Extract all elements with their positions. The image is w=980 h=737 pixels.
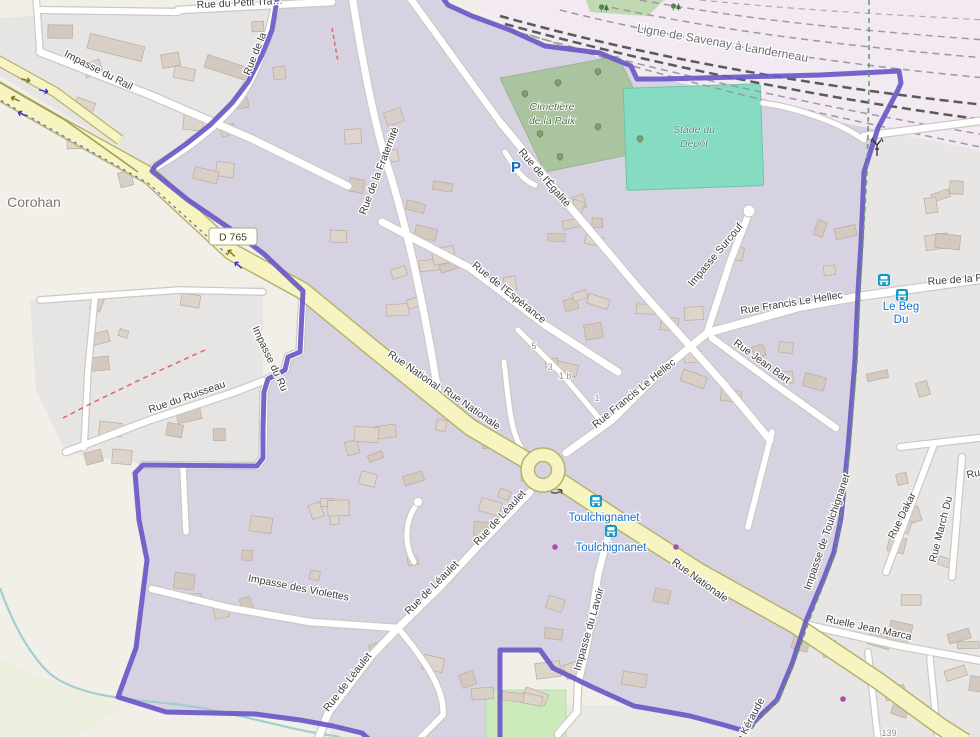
- building: [823, 265, 836, 276]
- building: [48, 25, 73, 39]
- building: [344, 129, 362, 145]
- building: [354, 426, 379, 443]
- bus-icon: [590, 495, 602, 507]
- building: [896, 472, 909, 485]
- bus-stop-label-toulchignanet-1: Toulchignanet: [569, 512, 641, 524]
- cul-de-sac: [414, 498, 423, 507]
- building: [213, 428, 225, 440]
- cemetery-label-line1: Cimetière: [530, 101, 575, 113]
- building: [778, 341, 793, 353]
- building: [252, 21, 264, 32]
- building: [180, 293, 201, 308]
- house-number: 139: [881, 728, 896, 737]
- house-number: 1: [594, 393, 599, 403]
- building: [386, 304, 409, 317]
- building: [435, 419, 447, 432]
- road-ref-text: D 765: [219, 232, 247, 244]
- house-number: 3: [547, 362, 552, 372]
- building: [330, 230, 347, 243]
- building: [91, 356, 109, 371]
- cul-de-sac: [743, 205, 755, 217]
- building: [592, 218, 603, 228]
- bus-stop-label-toulchignanet-2: Toulchignanet: [576, 542, 648, 554]
- building: [173, 572, 195, 590]
- building: [166, 422, 184, 437]
- building: [548, 234, 565, 242]
- house-number: 1 b: [559, 371, 572, 381]
- building: [949, 181, 963, 195]
- parking-icon: P: [511, 159, 521, 176]
- map-canvas[interactable]: D 765 P Corohan Ligne de Savenay à Lande…: [0, 0, 980, 737]
- bus-icon: [896, 289, 908, 301]
- building: [471, 687, 494, 700]
- building: [684, 306, 703, 320]
- bus-icon: [605, 525, 617, 537]
- building: [309, 570, 321, 581]
- bus-icon: [878, 274, 890, 286]
- poi-dot: [552, 544, 558, 550]
- stadium-label-line1: Stade du: [673, 124, 715, 136]
- residential-area-west: [30, 286, 263, 465]
- building: [327, 500, 349, 516]
- poi-dot: [673, 544, 679, 550]
- map-viewport: D 765 P Corohan Ligne de Savenay à Lande…: [0, 0, 980, 737]
- stadium-label-line2: Dépôt: [680, 138, 709, 150]
- road-ref-badge: D 765: [209, 228, 257, 245]
- building: [242, 550, 253, 560]
- bus-stop-label-le-beg-line2: Du: [894, 314, 909, 326]
- building: [935, 233, 961, 250]
- building: [544, 627, 563, 640]
- cemetery-label-line2: de la Paix: [529, 115, 576, 127]
- building: [249, 516, 273, 534]
- building: [969, 676, 980, 694]
- place-label-corohan: Corohan: [7, 194, 61, 210]
- building: [584, 322, 604, 340]
- house-number: 5: [531, 341, 536, 351]
- building: [273, 66, 286, 80]
- bus-stop-label-le-beg-line1: Le Beg: [883, 301, 919, 313]
- street-label-ru-fragment: Ru: [966, 467, 980, 482]
- road: [40, 10, 178, 12]
- building: [653, 588, 671, 605]
- building: [901, 595, 921, 606]
- building: [112, 449, 133, 465]
- road: [183, 468, 186, 532]
- building: [924, 197, 938, 214]
- poi-dot: [840, 696, 846, 702]
- building: [957, 641, 979, 649]
